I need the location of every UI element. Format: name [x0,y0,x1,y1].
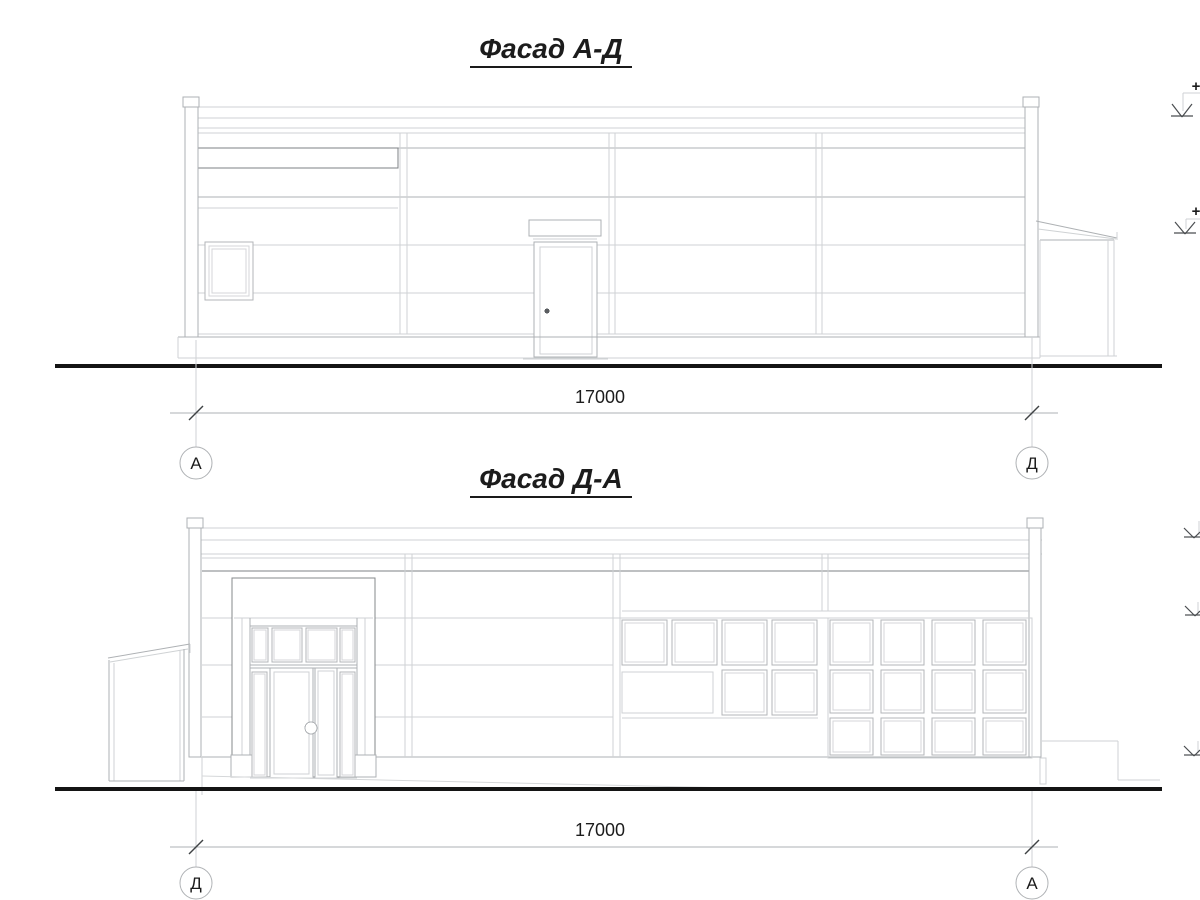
ramp-edge [202,776,735,788]
window-pane [881,620,924,665]
facade-ad: Фасад А-Д [55,33,1200,479]
window-pane [830,670,873,713]
service-door [534,242,597,357]
facade-ad-title: Фасад А-Д [479,33,622,64]
facade-ad-window [205,242,253,300]
facade-da: Фасад Д-А [55,463,1200,899]
window-pane [622,620,667,665]
drawing-sheet: Фасад А-Д [0,0,1200,900]
elevation-mark [1184,521,1200,538]
axis-bubble-right: Д [1016,447,1048,479]
facade-da-leanto [108,644,190,781]
window-pane [881,670,924,713]
column-cap-left [187,518,203,528]
column-cap-right [1027,518,1043,528]
window-pane [722,670,767,715]
svg-text:Д: Д [1026,454,1038,473]
svg-text:А: А [190,454,202,473]
facade-da-entrance [231,578,376,778]
drawing-canvas: Фасад А-Д [0,0,1200,900]
wall-step-outline [622,672,713,713]
window-pane [722,620,767,665]
window-pane [830,718,873,755]
window-pane [983,718,1026,755]
svg-text:Д: Д [190,874,202,893]
pilaster-base [231,755,252,777]
elevation-mark [1184,741,1200,756]
facade-da-window-band [622,611,1032,758]
window-pane [932,670,975,713]
elevation-mark: + [1174,203,1200,234]
elevation-mark: + [1171,78,1200,117]
window-pane [830,620,873,665]
axis-bubble-right: А [1016,867,1048,899]
facade-ad-entrance [523,220,608,359]
column-cap-left [183,97,199,107]
facade-ad-plinth [178,337,1040,358]
pilaster-base [355,755,376,777]
window-pane [932,718,975,755]
column-cap-right [1023,97,1039,107]
svg-text:+: + [1192,78,1200,95]
door-handle [545,309,550,314]
transom-pane [272,628,302,662]
facade-da-title: Фасад Д-А [479,463,622,494]
dimension-value: 17000 [575,820,625,840]
window-pane [672,620,717,665]
door-handle [305,722,317,734]
window-pane [772,670,817,715]
window-pane [881,718,924,755]
entrance-door-leaf-wide [270,668,313,778]
facade-ad-fascia-panel [196,148,398,168]
door-canopy [529,220,601,236]
svg-text:А: А [1026,874,1038,893]
facade-da-dimension: 17000 Д А [170,791,1058,899]
corner-column-right [1025,107,1038,337]
corner-column-left [189,528,201,757]
corner-column-left [185,107,198,337]
window-pane [983,670,1026,713]
dimension-value: 17000 [575,387,625,407]
elevation-mark [1185,602,1200,616]
transom-pane [306,628,337,662]
svg-text:+: + [1192,203,1200,220]
window-pane [772,620,817,665]
facade-ad-annex [1036,221,1117,356]
window-pane [932,620,975,665]
window-pane [983,620,1026,665]
corner-column-right [1029,528,1041,757]
axis-bubble-left: Д [180,867,212,899]
axis-bubble-left: А [180,447,212,479]
facade-ad-wall-joints [186,107,1038,334]
window-grid [622,620,1026,755]
